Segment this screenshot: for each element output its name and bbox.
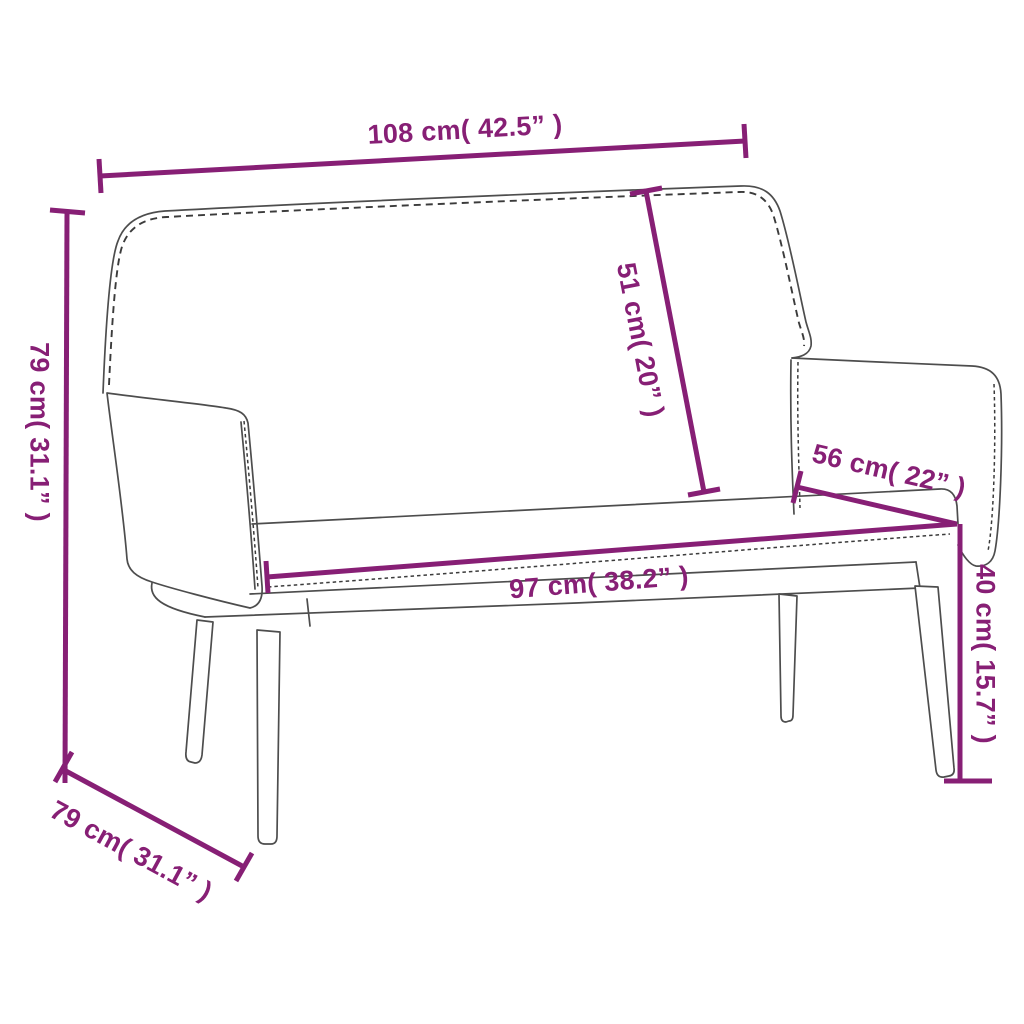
rear-left-leg xyxy=(186,620,213,763)
dim-label-seat-height: 40 cm( 15.7” ) xyxy=(970,564,1001,744)
legs xyxy=(186,586,954,844)
left-armrest xyxy=(107,393,262,608)
front-left-leg xyxy=(257,630,280,844)
dim-line-overall-height xyxy=(50,210,85,783)
dim-label-overall-height: 79 cm( 31.1” ) xyxy=(24,342,55,522)
product-dimension-diagram: 108 cm( 42.5” ) 79 cm( 31.1” ) 51 cm( 20… xyxy=(0,0,1024,1024)
front-right-leg xyxy=(915,586,954,777)
rear-right-leg xyxy=(779,594,797,722)
